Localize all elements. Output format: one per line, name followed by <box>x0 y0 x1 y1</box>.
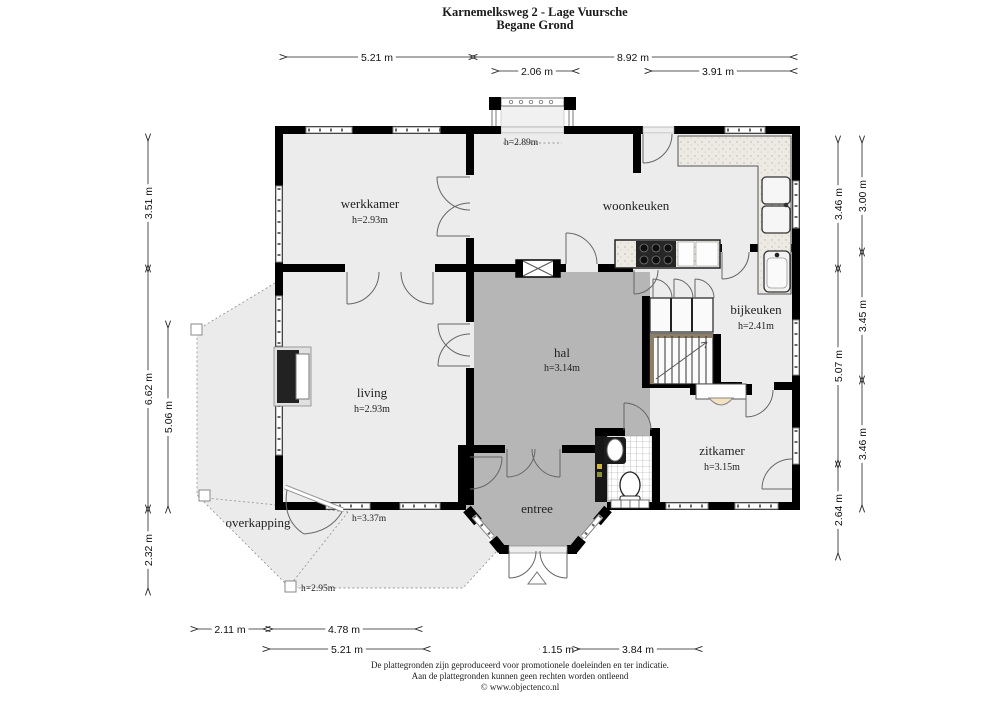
burner-icon <box>640 256 648 264</box>
toilet-icon <box>620 472 640 498</box>
sink-icon <box>762 177 790 204</box>
dim-left-1: 3.51 m <box>143 187 155 219</box>
wall-core-a <box>466 134 474 175</box>
height-label-terrace-door: h=3.37m <box>352 514 387 524</box>
room-height-living: h=2.93m <box>354 404 390 415</box>
room-label-zitkamer: zitkamer <box>699 443 745 458</box>
bay-front-post <box>567 545 577 554</box>
dim-top-1: 5.21 m <box>361 52 393 64</box>
dim-bottom-3: 5.21 m <box>331 644 363 656</box>
room-label-entree: entree <box>521 501 553 516</box>
room-height-bijkeuken: h=2.41m <box>738 321 774 332</box>
console-stub <box>690 384 696 395</box>
window <box>735 503 778 509</box>
dim-top-4: 3.91 m <box>702 66 734 78</box>
island-segment <box>696 242 718 266</box>
room-label-overkapping: overkapping <box>226 515 291 530</box>
stairs-trim <box>650 334 713 338</box>
floorplan-page: Karnemelksweg 2 - Lage Vuursche Begane G… <box>0 0 1000 707</box>
bay-front-post <box>499 545 509 554</box>
dim-bottom-4: 1.15 m <box>542 644 574 656</box>
dim-bottom-2: 4.78 m <box>328 624 360 636</box>
window <box>276 186 282 262</box>
dim-right-inner-2: 5.07 m <box>833 350 845 382</box>
footer-line-2: Aan de plattegronden kunnen geen rechten… <box>412 671 629 681</box>
closets <box>650 298 713 332</box>
burner-icon <box>664 244 672 252</box>
console-table <box>696 384 746 399</box>
height-label-terrace-edge: h=2.95m <box>301 584 336 594</box>
wall-werk-living-a <box>283 264 345 272</box>
railing-baluster <box>519 100 523 104</box>
wall-toilet-right <box>652 428 660 510</box>
front-door-sill <box>509 546 567 553</box>
burner-icon <box>652 256 660 264</box>
wall-toilet-top-a <box>595 428 625 436</box>
sink-icon <box>762 206 790 233</box>
footer-line-1: De plattegronden zijn geproduceerd voor … <box>371 660 669 670</box>
stairs-trim <box>650 334 654 384</box>
title-address: Karnemelksweg 2 - Lage Vuursche <box>442 5 628 19</box>
room-label-woonkeuken: woonkeuken <box>603 198 670 213</box>
window <box>793 320 799 375</box>
dim-left-3: 2.32 m <box>143 534 155 566</box>
meter-indicator <box>597 464 602 469</box>
pass-through-hatch <box>516 260 560 277</box>
washbasin-icon <box>607 439 623 461</box>
porch-post <box>489 97 501 110</box>
wall-hal-entry-a <box>474 445 505 453</box>
burner-icon <box>640 244 648 252</box>
room-label-werkkamer: werkkamer <box>341 196 400 211</box>
wall-zitkamer-top-b <box>774 382 800 390</box>
floor-plan: Karnemelksweg 2 - Lage Vuursche Begane G… <box>0 0 1000 707</box>
utility-sink-basin <box>767 258 787 288</box>
island-segment <box>678 242 694 266</box>
wall-core-b <box>466 238 474 322</box>
porch-floor <box>501 106 564 127</box>
room-label-hal: hal <box>554 345 570 360</box>
plan-title: Karnemelksweg 2 - Lage Vuursche Begane G… <box>442 5 628 32</box>
window <box>666 503 708 509</box>
console-stub <box>746 384 752 395</box>
wall-werk-living-b <box>435 264 466 272</box>
burner-icon <box>664 256 672 264</box>
wall-entry-left <box>458 445 474 505</box>
window <box>793 181 799 228</box>
room-height-werkkamer: h=2.93m <box>352 215 388 226</box>
window <box>393 127 440 133</box>
porch-post <box>564 97 576 110</box>
dim-right-outer-1: 3.00 m <box>857 180 869 212</box>
wall-hal-kitchen-a <box>474 264 520 272</box>
dim-right-inner-3: 2.64 m <box>833 494 845 526</box>
faucet-icon <box>775 253 780 258</box>
entrance-marker-icon <box>528 572 546 584</box>
window <box>276 403 282 455</box>
dim-right-outer-3: 3.46 m <box>857 428 869 460</box>
dim-left-4: 5.06 m <box>163 401 175 433</box>
window <box>725 127 765 133</box>
window <box>306 127 352 133</box>
title-floor: Begane Grond <box>496 18 573 32</box>
fireplace-hearth <box>296 354 309 399</box>
canopy-post <box>191 324 202 335</box>
canopy-post <box>285 581 296 592</box>
dim-left-2: 6.62 m <box>143 373 155 405</box>
wall-kitchen-stub <box>633 134 641 173</box>
burner-icon <box>652 244 660 252</box>
canopy-post <box>199 490 210 501</box>
wall-core-c <box>466 368 474 445</box>
wall-hal-entry-b <box>562 445 595 453</box>
railing-baluster <box>509 100 513 104</box>
wall-stairs-left <box>642 296 650 388</box>
room-label-bijkeuken: bijkeuken <box>730 302 782 317</box>
dim-top-3: 2.06 m <box>521 66 553 78</box>
height-label-balcony: h=2.89m <box>504 138 539 148</box>
meter-indicator <box>597 472 602 477</box>
room-height-hal: h=3.14m <box>544 363 580 374</box>
railing-baluster <box>529 100 533 104</box>
window <box>793 428 799 464</box>
room-label-living: living <box>357 385 388 400</box>
window <box>276 296 282 346</box>
front-door-arc <box>540 551 567 578</box>
footer: De plattegronden zijn geproduceerd voor … <box>371 660 669 692</box>
room-height-zitkamer: h=3.15m <box>704 462 740 473</box>
backdoor-threshold <box>643 127 674 133</box>
faucet-icon <box>784 203 789 208</box>
window <box>400 503 440 509</box>
living-fixtures <box>274 347 311 406</box>
dim-bottom-1: 2.11 m <box>214 624 246 636</box>
wall-top-mid <box>564 126 643 134</box>
railing-baluster <box>549 100 553 104</box>
wall-stairs-right <box>713 334 721 388</box>
footer-line-3: © www.objectenco.nl <box>481 682 560 692</box>
railing-baluster <box>539 100 543 104</box>
dim-top-2: 8.92 m <box>617 52 649 64</box>
front-door-arc <box>509 551 536 578</box>
porch-threshold <box>501 127 564 133</box>
dim-bottom-5: 3.84 m <box>622 644 654 656</box>
dim-right-outer-2: 3.45 m <box>857 300 869 332</box>
dim-right-inner-1: 3.46 m <box>833 188 845 220</box>
